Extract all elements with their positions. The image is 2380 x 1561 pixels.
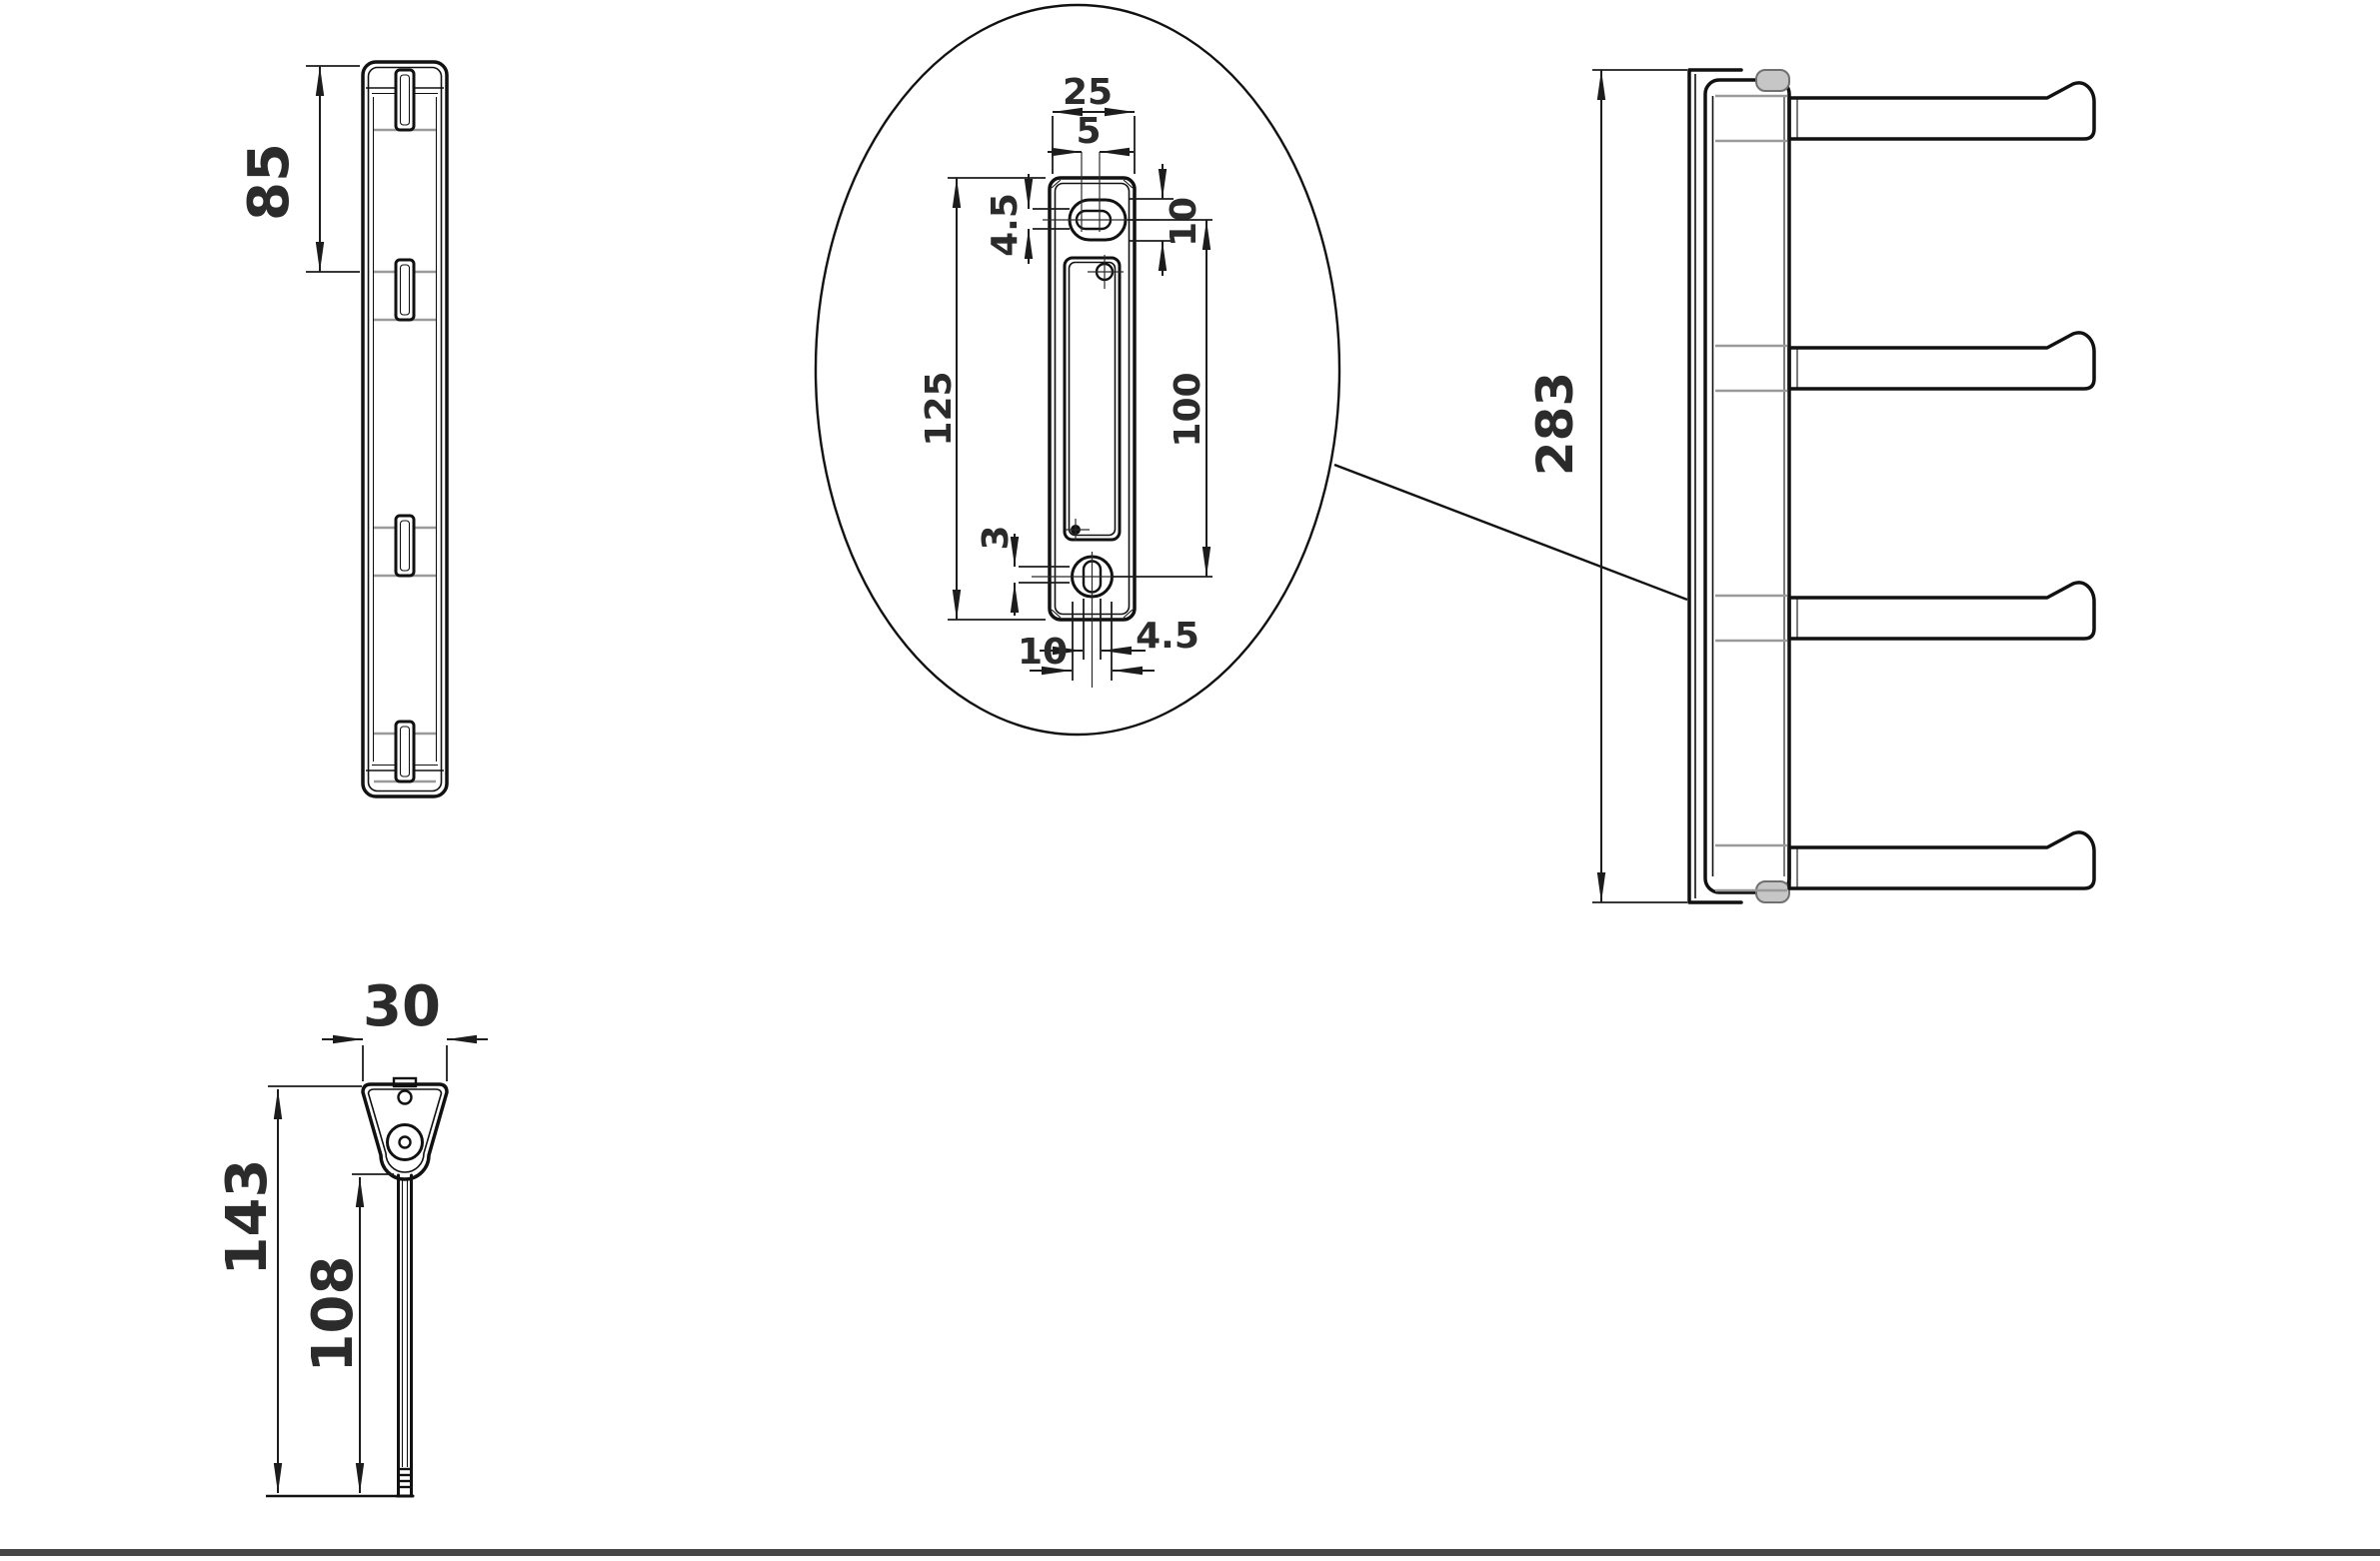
pivot-center-hole (400, 1137, 411, 1148)
dim-label-100: 100 (1168, 372, 1208, 447)
rail-arm-1 (1789, 83, 2094, 139)
dim-label-5: 5 (1076, 111, 1101, 152)
dim-label-10-bottom: 10 (1018, 632, 1068, 673)
dim-label-10-top: 10 (1164, 197, 1204, 247)
arm-bracket (363, 1084, 447, 1179)
dim-label-30: 30 (363, 974, 441, 1039)
detail-leader-line (1334, 465, 1687, 600)
dim-label-25: 25 (1063, 72, 1113, 113)
mounting-plate-inner (1056, 184, 1130, 615)
rail-body (1705, 80, 1789, 892)
rail-arm-4 (1789, 832, 2094, 888)
rail-arm-2 (1789, 333, 2094, 389)
rail-arm-3 (1789, 583, 2094, 639)
front-view: 283 (1526, 70, 2094, 902)
dim-label-143: 143 (215, 1159, 280, 1276)
rail-profile-inner (369, 68, 442, 791)
bracket-screw-hole (399, 1091, 412, 1104)
dim-label-283: 283 (1526, 372, 1584, 476)
plate-recess (1065, 258, 1120, 540)
footer-bar (0, 1549, 2380, 1556)
top-view: 30 143 108 (215, 974, 488, 1496)
rail-bottom-cap (1756, 881, 1789, 902)
dim-label-4.5-top: 4.5 (985, 193, 1026, 257)
rail-profile-outline (363, 62, 447, 796)
mounting-tab-4 (396, 722, 414, 781)
mounting-tab-3 (396, 516, 414, 576)
dim-label-108: 108 (301, 1256, 366, 1373)
dim-label-85: 85 (237, 143, 302, 221)
pivot-circle (388, 1125, 423, 1160)
dim-label-4.5-bottom: 4.5 (1136, 616, 1199, 657)
mounting-tab-2 (396, 260, 414, 320)
wall-plate (1689, 70, 1741, 902)
plate-recess-inner (1070, 263, 1116, 536)
rail-top-cap (1756, 70, 1789, 91)
side-view: 85 (237, 62, 447, 796)
detail-view: 25 5 4.5 10 125 100 3 (816, 5, 1687, 735)
mounting-tab-1 (396, 70, 414, 130)
drawing-page: 85 25 (0, 0, 2380, 1561)
dim-label-3: 3 (976, 525, 1017, 550)
dim-label-125: 125 (919, 371, 960, 446)
technical-drawing: 85 25 (0, 0, 2380, 1561)
